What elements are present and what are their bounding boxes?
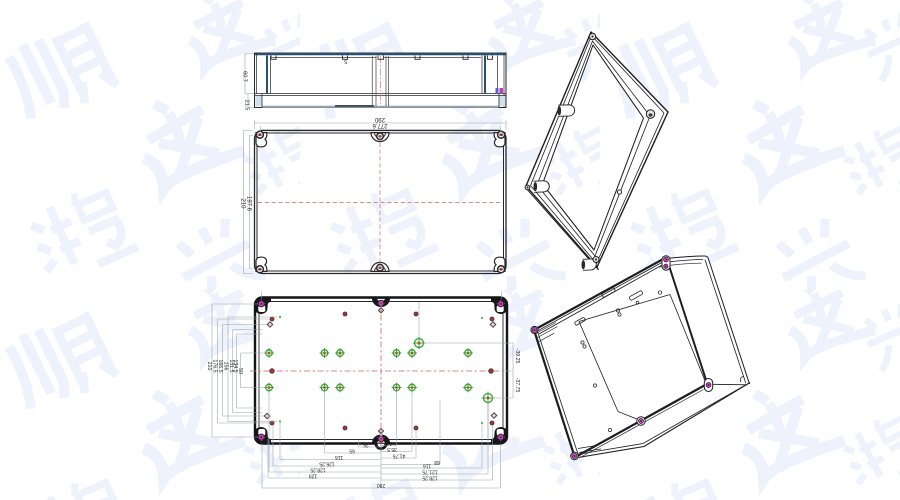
svg-text:290: 290 [374,116,385,122]
svg-text:26: 26 [363,441,369,447]
svg-text:65: 65 [349,447,355,453]
svg-text:35.5: 35.5 [387,446,397,452]
svg-text:210: 210 [240,198,246,209]
svg-text:21.5: 21.5 [244,100,250,111]
svg-text:210: 210 [206,362,212,371]
svg-text:50: 50 [237,368,243,374]
svg-text:126.25: 126.25 [319,460,335,466]
svg-text:-37.75: -37.75 [514,378,520,393]
svg-text:128.25: 128.25 [422,474,438,480]
svg-text:121.75: 121.75 [422,468,438,474]
svg-text:116: 116 [423,463,431,469]
svg-text:17: 17 [386,440,392,446]
svg-text:197.6: 197.6 [246,196,252,212]
svg-text:129: 129 [309,472,318,478]
svg-text:5: 5 [344,58,347,64]
svg-text:277.6: 277.6 [372,122,388,128]
svg-text:128.25: 128.25 [310,466,326,472]
svg-text:166.5: 166.5 [217,360,223,373]
svg-text:60.7: 60.7 [242,71,248,82]
svg-text:290: 290 [377,482,386,488]
svg-text:116: 116 [335,454,343,460]
svg-text:-39.25: -39.25 [514,349,520,364]
svg-text:156: 156 [223,362,229,371]
svg-text:68: 68 [434,459,440,465]
svg-text:176.5: 176.5 [212,360,218,373]
svg-text:41.75: 41.75 [393,452,406,458]
